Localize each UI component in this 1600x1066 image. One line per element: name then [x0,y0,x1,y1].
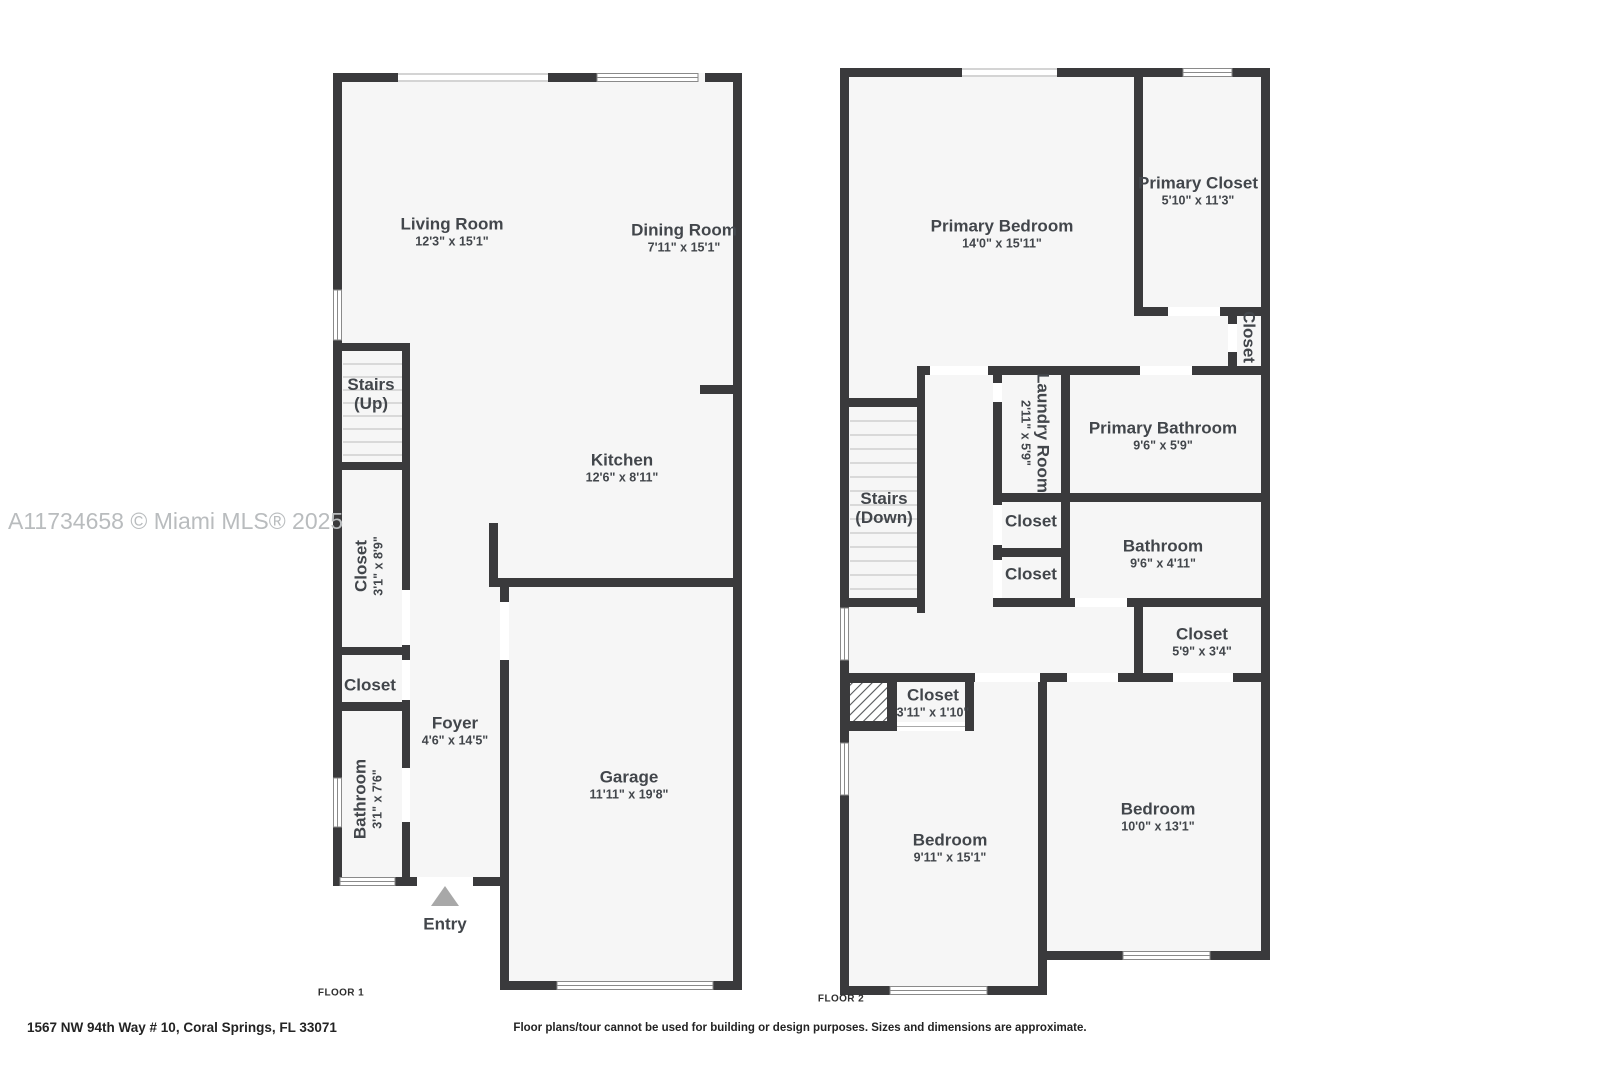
floor2-tag: FLOOR 2 [818,994,864,1005]
entry-arrow-icon [431,886,459,906]
room-label-primary-bathroom: Primary Bathroom 9'6" x 5'9" [1089,419,1237,454]
room-label-stairs-down: Stairs (Down) [855,489,913,527]
floor1-plate [333,73,742,990]
room-label-dining-room: Dining Room 7'11" x 15'1" [631,221,737,256]
room-label-living-room: Living Room 12'3" x 15'1" [401,215,504,250]
room-label-bedroom1: Bedroom 9'11" x 15'1" [913,831,988,866]
entry-label: Entry [423,915,466,934]
property-address: 1567 NW 94th Way # 10, Coral Springs, FL… [27,1020,337,1035]
room-label-closet-hall2: Closet [1005,565,1057,584]
room-label-laundry: Laundry Room 2'11" x 5'9" [1018,373,1053,493]
floorplan-page: Living Room 12'3" x 15'1" Dining Room 7'… [0,0,1600,1066]
room-label-closet-bed2: Closet 5'9" x 3'4" [1172,625,1232,660]
room-label-stairs-up: Stairs (Up) [347,375,394,413]
room-label-closet-tall: Closet 3'1" x 8'9" [352,536,387,596]
hatched-area [849,682,888,722]
floor1-tag: FLOOR 1 [318,988,364,999]
room-label-closet-hall1: Closet [1005,512,1057,531]
room-label-bathroom-f2: Bathroom 9'6" x 4'11" [1123,537,1203,572]
room-label-garage: Garage 11'11" x 19'8" [590,768,669,803]
room-label-closet-bed1: Closet 3'11" x 1'10" [897,686,970,721]
room-label-primary-bedroom: Primary Bedroom 14'0" x 15'11" [931,217,1074,252]
room-label-foyer: Foyer 4'6" x 14'5" [422,714,488,749]
room-label-kitchen: Kitchen 12'6" x 8'11" [586,451,659,486]
room-label-closet-side: Closet [1240,311,1259,363]
mls-watermark: A11734658 © Miami MLS® 2025 [8,508,343,535]
room-label-closet-small: Closet [344,676,396,695]
room-label-bedroom2: Bedroom 10'0" x 13'1" [1121,800,1196,835]
room-label-primary-closet: Primary Closet 5'10" x 11'3" [1138,174,1258,209]
disclaimer-text: Floor plans/tour cannot be used for buil… [513,1022,1086,1034]
room-label-bathroom-f1: Bathroom 3'1" x 7'6" [351,759,386,839]
